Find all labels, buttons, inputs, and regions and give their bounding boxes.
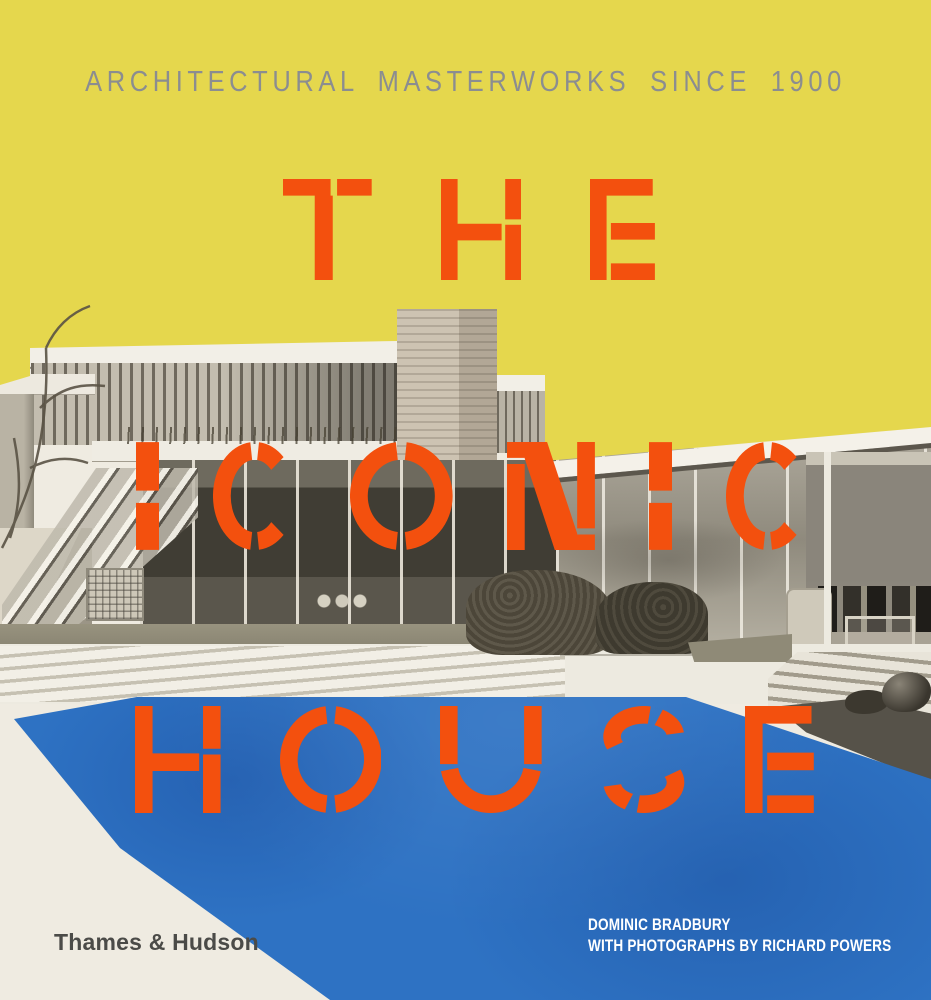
patio-post (824, 452, 831, 656)
stencil-letter-E (590, 179, 655, 280)
terrace-steps (0, 646, 565, 702)
boulder (882, 672, 931, 712)
stencil-letter-C (213, 442, 296, 550)
stencil-letter-C (726, 442, 809, 550)
stencil-letter-O (350, 442, 453, 550)
book-cover: ARCHITECTURAL MASTERWORKS SINCE 1900 Tha… (0, 0, 931, 1000)
mesh-gate (86, 568, 144, 621)
publisher-logo: Thames & Hudson (54, 929, 259, 956)
stencil-letter-O (280, 706, 382, 813)
photographer-credit: WITH PHOTOGRAPHS BY RICHARD POWERS (588, 936, 891, 957)
stone-chimney (397, 307, 497, 464)
stencil-letter-H (441, 179, 522, 280)
stencil-letter-E (745, 706, 814, 813)
interior-chairs (316, 592, 368, 620)
title-line-1 (283, 179, 655, 280)
stencil-letter-I (136, 442, 159, 550)
credits: DOMINIC BRADBURY WITH PHOTOGRAPHS BY RIC… (588, 915, 891, 956)
stencil-letter-S (601, 706, 687, 813)
stencil-letter-U (440, 706, 542, 813)
stencil-letter-H (135, 706, 221, 813)
pavilion-fascia (497, 373, 545, 392)
hedge (466, 570, 612, 655)
stencil-letter-I (649, 442, 672, 550)
title-line-3 (135, 706, 814, 813)
author-credit: DOMINIC BRADBURY (588, 915, 891, 936)
title-line-2 (136, 442, 809, 550)
stencil-letter-T (283, 179, 372, 280)
tagline: ARCHITECTURAL MASTERWORKS SINCE 1900 (0, 66, 931, 99)
tree-branches-graphic (0, 288, 130, 558)
stencil-letter-N (507, 442, 595, 550)
